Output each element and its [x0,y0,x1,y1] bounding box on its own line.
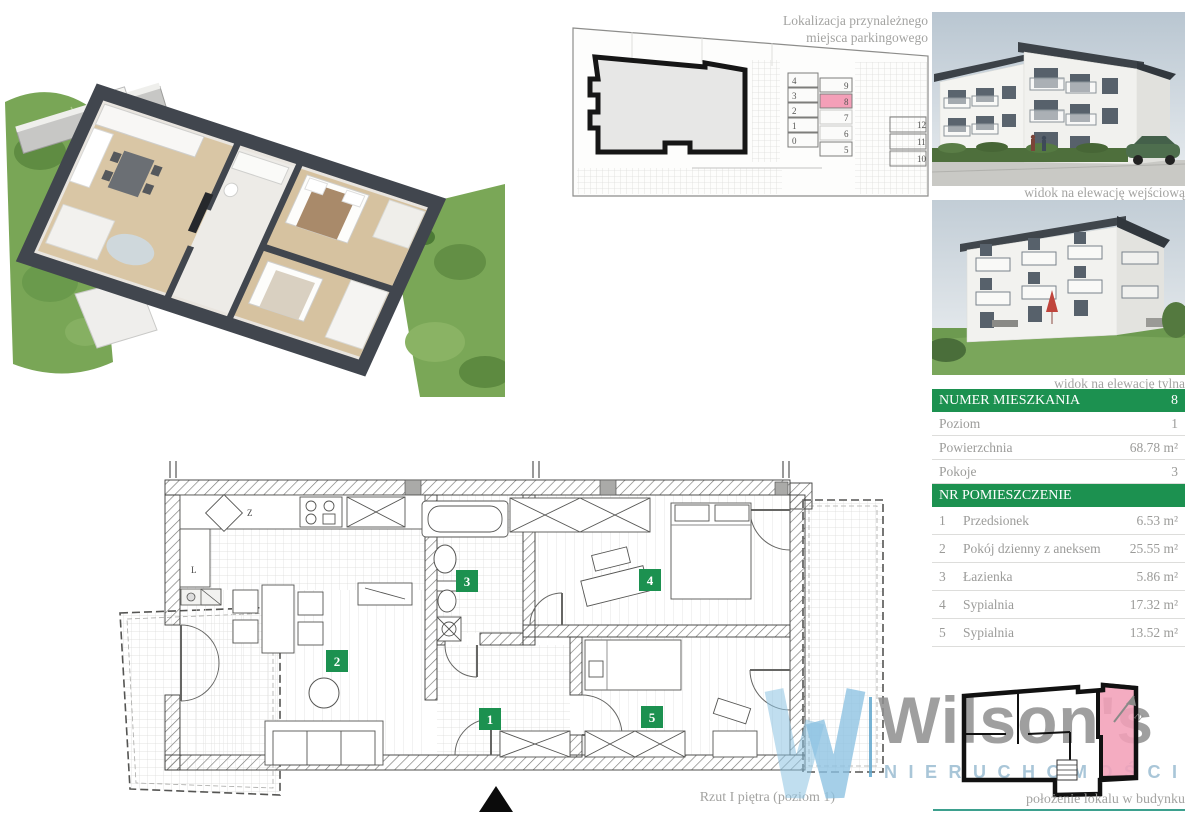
interior-walls-mini [964,690,1070,779]
stall-number: 12 [917,120,926,130]
table-row: Powierzchnia 68.78 m² [932,436,1185,460]
logo-w-icon [764,688,866,802]
stall-number: 9 [844,81,849,91]
room-area: 5.86 m² [1136,569,1178,585]
table-header-apartment: NUMER MIESZKANIA 8 [932,389,1185,412]
footer-rule [933,809,1185,811]
room-name: Sypialnia [963,597,1130,613]
row-label: Poziom [939,416,980,432]
row-label: Powierzchnia [939,440,1012,456]
sofa [265,721,383,765]
row-label: Pokoje [939,464,977,480]
stove [300,497,342,527]
wardrobe-4 [510,498,650,532]
location-caption: położenie lokalu w budynku [955,792,1185,808]
room-area: 13.52 m² [1130,625,1178,641]
rooms-header-label: NR POMIESZCZENIE [939,488,1072,504]
table-row: Poziom 1 [932,412,1185,436]
washbasin [434,545,456,573]
row-value: 68.78 m² [1130,440,1178,456]
stall-number: 4 [792,76,797,86]
table-header-rooms: NR POMIESZCZENIE [932,484,1185,507]
toilet [437,581,457,612]
highlighted-unit [1098,685,1136,778]
building-photo-entrance [932,12,1185,186]
room-nr: 3 [939,569,963,585]
stall-number: 2 [792,106,797,116]
stall-number: 7 [844,113,849,123]
stairs-mini [1057,760,1077,780]
table-row: Pokoje 3 [932,460,1185,484]
photo-entrance-caption: widok na elewację wejściową [932,185,1185,201]
single-bed [585,640,681,690]
room-nr: 1 [939,513,963,529]
room-row: 1 Przedsionek 6.53 m² [932,507,1185,535]
room-row: 4 Sypialnia 17.32 m² [932,591,1185,619]
room-area: 6.53 m² [1136,513,1178,529]
row-value: 1 [1171,416,1178,432]
parking-diagram: 4 3 2 1 0 9 8 7 6 5 12 11 10 [572,26,930,202]
kitchen-sink-cab [181,589,221,605]
apartment-info-table: NUMER MIESZKANIA 8 Poziom 1 Powierzchnia… [932,389,1185,647]
bathtub [422,501,508,537]
room-label-3: 3 [464,574,471,589]
room-name: Przedsionek [963,513,1136,529]
listing-sheet: Lokalizacja przynależnego miejsca parkin… [0,0,1200,815]
kitchen-z-label: Z [247,508,253,518]
logo-divider [869,697,872,777]
stall-number: 8 [844,97,849,107]
header-label: NUMER MIESZKANIA [939,393,1080,409]
room-label-2: 2 [334,654,341,669]
room-area: 25.55 m² [1130,541,1178,557]
stall-number: 0 [792,136,797,146]
unit-location-plan: N [958,682,1148,800]
room-nr: 5 [939,625,963,641]
stall-number: 3 [792,91,797,101]
pavement-hatch [577,168,782,194]
dimension-ticks [170,461,789,478]
room-label-5: 5 [649,710,656,725]
row-value: 3 [1171,464,1178,480]
building-photo-rear [932,200,1185,375]
room-row: 3 Łazienka 5.86 m² [932,563,1185,591]
parking-building-outline [590,57,745,152]
double-bed [671,503,751,599]
wardrobe-5 [585,731,685,757]
stall-number: 6 [844,129,849,139]
room-label-1: 1 [487,712,494,727]
room-area: 17.32 m² [1130,597,1178,613]
washer [437,617,461,641]
stall-number: 11 [917,137,926,147]
room-nr: 4 [939,597,963,613]
stall-number: 5 [844,145,849,155]
room-name: Pokój dzienny z aneksem [963,541,1130,557]
apartment-number: 8 [1171,393,1178,409]
tv-board [358,583,412,605]
room-nr: 2 [939,541,963,557]
room-name: Łazienka [963,569,1136,585]
room-name: Sypialnia [963,625,1130,641]
room-row: 2 Pokój dzienny z aneksem 25.55 m² [932,535,1185,563]
road [932,160,1185,186]
room-row: 5 Sypialnia 13.52 m² [932,619,1185,647]
kitchen-wardrobe [347,497,405,527]
floor-3d-render [5,62,505,397]
stall-number: 1 [792,121,797,131]
kitchen-l-label: L [191,565,197,575]
stall-number: 10 [917,154,927,164]
room-label-4: 4 [647,573,654,588]
coffee-table [309,678,339,708]
hall-wardrobe [500,731,570,757]
